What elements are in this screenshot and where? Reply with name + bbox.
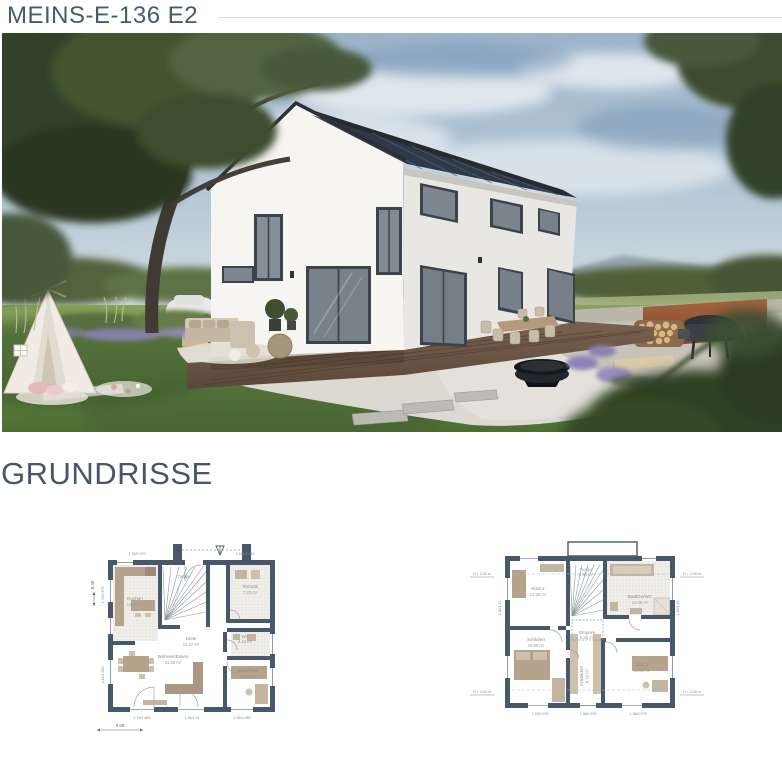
svg-text:Wohnen/Essen: Wohnen/Essen — [157, 654, 189, 659]
north-arrow-icon — [216, 546, 224, 555]
svg-text:8.33 m²: 8.33 m² — [585, 668, 590, 683]
svg-text:3.34 m²: 3.34 m² — [238, 639, 253, 644]
floorplan-obergeschoss: Kind 2 13.25 m² Treppe 5.98 m² Bad/Du/WC… — [460, 538, 710, 725]
svg-text:1.76/0.975: 1.76/0.975 — [101, 587, 105, 604]
svg-text:5.36 m²: 5.36 m² — [580, 635, 595, 640]
svg-text:1.36/1.43: 1.36/1.43 — [498, 601, 502, 616]
svg-text:1.76/0.975: 1.76/0.975 — [532, 712, 549, 716]
svg-text:1.36/0.975: 1.36/0.975 — [580, 712, 597, 716]
svg-text:Diele: Diele — [186, 636, 197, 641]
svg-text:16.99 m²: 16.99 m² — [528, 643, 545, 648]
dormer-outline — [568, 542, 637, 556]
exterior-visualisation-image — [2, 33, 782, 432]
svg-text:H = 2.00 m: H = 2.00 m — [473, 572, 491, 576]
svg-text:10.35 m²: 10.35 m² — [240, 674, 257, 679]
svg-text:1.36/1.01: 1.36/1.01 — [185, 716, 200, 720]
svg-text:12.06 m²: 12.06 m² — [632, 600, 649, 605]
svg-text:1.76/0.975: 1.76/0.975 — [129, 552, 146, 556]
picnic-blanket-toys — [96, 381, 152, 397]
svg-text:12.05 m²: 12.05 m² — [127, 602, 144, 607]
svg-text:7.23 m²: 7.23 m² — [243, 590, 258, 595]
svg-text:2.26/1.885: 2.26/1.885 — [101, 667, 105, 684]
svg-text:H = 2.00 m: H = 2.00 m — [683, 572, 701, 576]
svg-text:5.98 m²: 5.98 m² — [579, 572, 594, 577]
svg-text:H = 2.00 m: H = 2.00 m — [683, 690, 701, 694]
floorplan-erdgeschoss: Kochen 12.05 m² Treppe Technik 7.23 m² D… — [85, 540, 310, 740]
svg-text:13.80 m²: 13.80 m² — [634, 668, 651, 673]
svg-text:Schlafen: Schlafen — [527, 637, 545, 642]
title-divider — [218, 17, 782, 18]
svg-text:Treppe: Treppe — [177, 574, 191, 579]
section-heading: GRUNDRISSE — [1, 456, 213, 492]
svg-text:Kind 1: Kind 1 — [635, 662, 648, 667]
svg-text:Kochen: Kochen — [127, 596, 143, 601]
svg-text:31.06 m²: 31.06 m² — [165, 660, 182, 665]
svg-text:Technik: Technik — [242, 584, 258, 589]
svg-text:Ankleiden: Ankleiden — [579, 665, 584, 686]
svg-text:Bad/Du/WC: Bad/Du/WC — [628, 594, 653, 599]
page-title: MEINS-E-136 E2 — [7, 2, 198, 30]
svg-text:12.27 m²: 12.27 m² — [183, 642, 200, 647]
house-detail-page: MEINS-E-136 E2 — [0, 0, 782, 757]
svg-text:1.36/1.085: 1.36/1.085 — [234, 716, 251, 720]
svg-text:1.36/1.43: 1.36/1.43 — [676, 601, 680, 616]
svg-text:1.185/2.415: 1.185/2.415 — [236, 552, 255, 556]
svg-text:8.48: 8.48 — [90, 580, 95, 589]
svg-text:1.38/0.975: 1.38/0.975 — [630, 712, 647, 716]
svg-text:1.76/1.885: 1.76/1.885 — [134, 716, 151, 720]
svg-text:13.25 m²: 13.25 m² — [530, 592, 547, 597]
svg-text:9.58: 9.58 — [116, 723, 125, 728]
svg-text:Kind 2: Kind 2 — [531, 586, 544, 591]
svg-text:H = 2.00 m: H = 2.00 m — [473, 690, 491, 694]
svg-text:Büro/Gast: Büro/Gast — [238, 668, 259, 673]
